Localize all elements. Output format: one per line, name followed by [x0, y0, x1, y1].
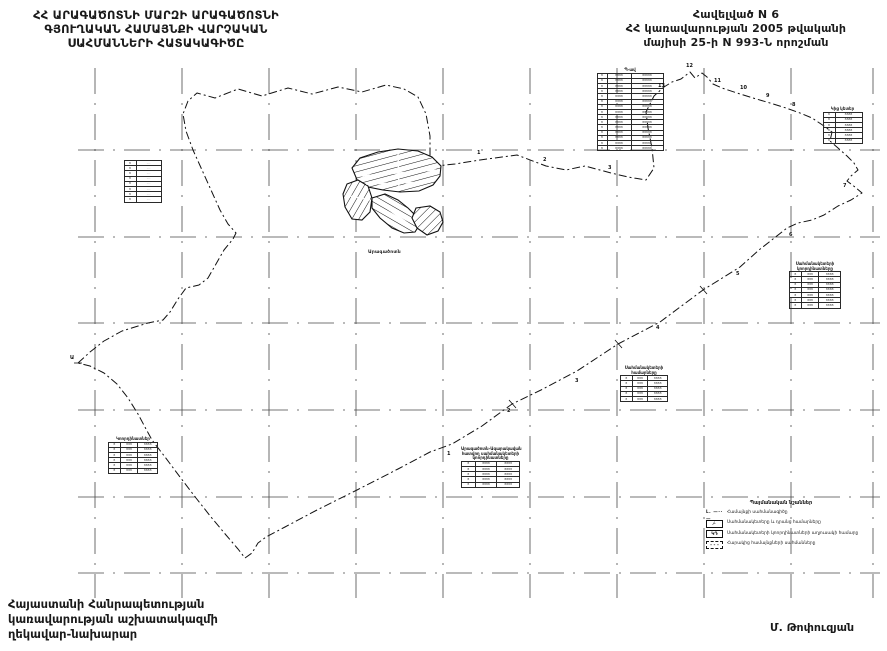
table-row: 88888888 [109, 468, 158, 473]
coordinate-table-6: 8····8····8····8····8····8····8····8···· [123, 160, 162, 203]
annex-line-3: մայիսի 25-ի N 993-Ն որոշման [592, 36, 880, 50]
box-point-icon: ⁄· [706, 520, 723, 528]
boundary-point-label: 10 [740, 86, 747, 91]
box-table-icon: ԿԴ [706, 530, 723, 538]
title-line-3: ՍԱՀՄԱՆՆԵՐԻ ՀԱՏԱԿԱԳԻԾԸ [10, 36, 302, 50]
boundary-point-label: 3 [575, 379, 578, 384]
boundary-point-label: 1 [477, 151, 480, 156]
table-cell: 888 [632, 396, 648, 401]
settlement-label: Արագածոտն [368, 250, 401, 255]
coordinate-table-1: Պ-ավ888888888888888888888888888888888888… [596, 68, 664, 151]
coordinate-table-7: Կոորդինատներ8888888888888888888888888888… [108, 437, 158, 474]
table-cell: 888 [801, 303, 819, 308]
table-cell: 8 [124, 197, 136, 202]
boundary-point-label: 4 [656, 326, 659, 331]
coordinate-table-3: Սահմանակետերիկոորդինատները88888888888888… [789, 262, 841, 309]
legend-title: Պայմանական նշաններ [706, 500, 856, 506]
boundary-point-label: 3 [608, 166, 611, 171]
table-cell: 8888 [138, 468, 158, 473]
table-row: 8···· [124, 197, 161, 202]
legend: Պայմանական նշաններ Լ. —··—Համայնքի սահմա… [706, 500, 856, 551]
legend-item-2: ⁄·Սահմանակետերը և դրանց համարները [706, 520, 856, 528]
boundary-point-label: 6 [789, 233, 792, 238]
boundary-point-label: 2 [543, 158, 546, 163]
legend-items: Լ. —··—Համայնքի սահմանագիծը⁄·Սահմանակետե… [706, 509, 856, 549]
table-cell: 8888 [607, 146, 631, 151]
issuer-block: Հայաստանի Հանրապետության կառավարության ա… [8, 597, 218, 642]
boundary-point-label: 1 [447, 452, 450, 457]
table-cell: 8 [109, 468, 121, 473]
issuer-line-3: ղեկավար-նախարար [8, 627, 218, 642]
table-cell: 8888 [497, 482, 520, 487]
title-line-2: ԳՅՈՒՂԱԿԱՆ ՀԱՄԱՅՆՔԻ ՎԱՐՉԱԿԱՆ [10, 22, 302, 36]
legend-item-label: Սահմանակետերի կոորդինատների աղյուսակի հա… [727, 532, 858, 537]
table-row: 88888888 [790, 303, 841, 308]
table-cell: 8 [597, 146, 607, 151]
boundary-point-label: 12 [686, 64, 693, 69]
coordinate-table-4: Սահմանակետերիհամարները888888888888888888… [620, 366, 668, 402]
table-cell: 8 [621, 396, 633, 401]
boundary-point-label: 7 [843, 184, 846, 189]
legend-item-label: Համայնքի սահմանագիծը [727, 511, 788, 516]
table-row: 888888888 [462, 482, 520, 487]
coordinate-table-5: Արագածոտն-Ագարակավանհատվող սահմանակետերի… [461, 447, 520, 488]
annex-line-2: ՀՀ կառավարության 2005 թվականի [592, 22, 880, 36]
annex-line-1: Հավելված N 6 [592, 8, 880, 22]
title-block: ՀՀ ԱՐԱԳԱԾՈՏՆԻ ՄԱՐԶԻ ԱՐԱԳԱԾՈՏՆԻ ԳՅՈՒՂԱԿԱՆ… [10, 8, 302, 50]
title-line-1: ՀՀ ԱՐԱԳԱԾՈՏՆԻ ՄԱՐԶԻ ԱՐԱԳԱԾՈՏՆԻ [10, 8, 302, 22]
settlement-area [343, 149, 443, 235]
table-cell: 8888 [835, 138, 862, 143]
table-cell: 8 [462, 482, 476, 487]
legend-item-1: Լ. —··—Համայնքի սահմանագիծը [706, 509, 856, 517]
map-canvas [0, 0, 887, 651]
table-cell: 8 [823, 138, 835, 143]
table-row: 8888888888 [597, 146, 663, 151]
box-dashed-icon: - - - [706, 541, 723, 549]
signature-name: Մ. Թոփուզյան [770, 621, 854, 634]
legend-item-label: Հարակից համայնքների սահմանները [727, 542, 815, 547]
legend-item-label: Սահմանակետերը և դրանց համարները [727, 521, 821, 526]
annex-block: Հավելված N 6 ՀՀ կառավարության 2005 թվակա… [592, 8, 880, 50]
table-row: 88888 [823, 138, 862, 143]
table-cell: 8888 [648, 396, 668, 401]
issuer-line-1: Հայաստանի Հանրապետության [8, 597, 218, 612]
legend-item-3: ԿԴՍահմանակետերի կոորդինատների աղյուսակի … [706, 530, 856, 538]
map-sheet: Պ-ավ888888888888888888888888888888888888… [0, 0, 887, 651]
coordinate-table-2: Կից կետեր888888888888888888888888888888 [821, 107, 864, 144]
boundary-point-label: Ա [70, 356, 74, 361]
boundary-point-label: 13 [658, 84, 665, 89]
boundary-line-icon: Լ. —··— [706, 509, 723, 517]
table-cell: 8888 [475, 482, 497, 487]
table-row: 88888888 [621, 396, 668, 401]
issuer-line-2: կառավարության աշխատակազմի [8, 612, 218, 627]
table-cell: ···· [136, 197, 161, 202]
boundary-point-label: 9 [766, 94, 769, 99]
table-cell: 888 [120, 468, 138, 473]
legend-item-4: - - -Հարակից համայնքների սահմանները [706, 541, 856, 549]
table-cell: 8888 [819, 303, 841, 308]
boundary-point-label: 2 [507, 409, 510, 414]
boundary-point-label: 8 [792, 103, 795, 108]
table-cell: 8 [790, 303, 802, 308]
table-cell: 88888 [631, 146, 663, 151]
boundary-point-label: 11 [714, 79, 721, 84]
boundary-point-label: 5 [736, 272, 739, 277]
